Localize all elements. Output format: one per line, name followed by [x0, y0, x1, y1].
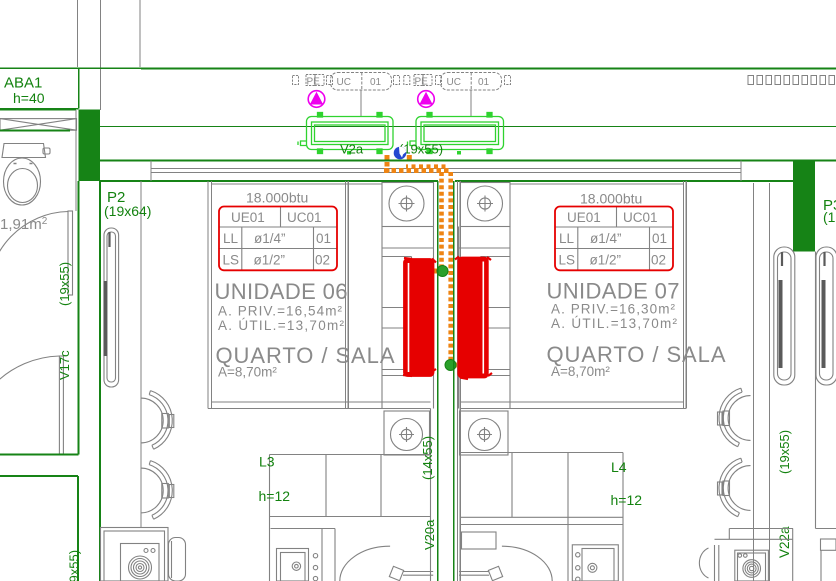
- svg-text:(19x55): (19x55): [777, 430, 792, 474]
- svg-text:A. ÚTIL.=13,70m²: A. ÚTIL.=13,70m²: [551, 316, 678, 331]
- svg-text:UC: UC: [337, 77, 351, 88]
- svg-text:A=8,70m²: A=8,70m²: [551, 364, 610, 379]
- svg-text:LS: LS: [223, 253, 240, 268]
- svg-text:h=12: h=12: [611, 492, 643, 508]
- svg-text:ø1/4”: ø1/4”: [590, 231, 622, 246]
- svg-text:UNIDADE 06: UNIDADE 06: [215, 279, 348, 304]
- svg-text:18.000btu: 18.000btu: [580, 191, 642, 207]
- svg-text:ø1/4”: ø1/4”: [254, 231, 286, 246]
- svg-text:(19x55): (19x55): [67, 550, 82, 581]
- svg-text:ABA1: ABA1: [4, 75, 42, 92]
- svg-text:V22a: V22a: [777, 526, 792, 558]
- svg-text:h=40: h=40: [13, 90, 45, 106]
- svg-text:A=8,70m²: A=8,70m²: [218, 365, 277, 380]
- svg-text:A. ÚTIL.=13,70m²: A. ÚTIL.=13,70m²: [218, 318, 345, 333]
- svg-text:LL: LL: [559, 231, 575, 246]
- svg-text:V17c: V17c: [57, 350, 72, 380]
- svg-text:LS: LS: [559, 253, 576, 268]
- svg-text:UE01: UE01: [567, 210, 601, 225]
- svg-text:(14x55): (14x55): [420, 436, 435, 480]
- svg-text:01: 01: [652, 231, 667, 246]
- svg-text:UE01: UE01: [231, 210, 265, 225]
- svg-text:LL: LL: [223, 231, 239, 246]
- svg-text:UC01: UC01: [287, 210, 322, 225]
- svg-text:h=12: h=12: [259, 488, 291, 504]
- svg-text:V20a: V20a: [422, 519, 437, 550]
- svg-text:01: 01: [370, 77, 382, 88]
- svg-text:ø1/2”: ø1/2”: [254, 253, 286, 268]
- svg-text:01: 01: [316, 231, 331, 246]
- svg-text:(1: (1: [823, 209, 836, 225]
- svg-text:V2a: V2a: [340, 142, 364, 157]
- svg-text:UC01: UC01: [623, 210, 658, 225]
- svg-text:PE: PE: [307, 77, 321, 88]
- svg-text:01: 01: [478, 77, 490, 88]
- svg-text:(19x55): (19x55): [57, 262, 72, 306]
- svg-text:L4: L4: [611, 459, 627, 475]
- svg-text:02: 02: [315, 253, 330, 268]
- svg-text:1,91m2: 1,91m2: [0, 216, 48, 233]
- svg-text:UC: UC: [447, 77, 461, 88]
- svg-text:(19x64): (19x64): [104, 203, 151, 219]
- svg-text:L3: L3: [259, 454, 275, 470]
- svg-text:PE: PE: [415, 77, 429, 88]
- svg-text:ø1/2”: ø1/2”: [590, 253, 622, 268]
- svg-text:18.000btu: 18.000btu: [246, 190, 308, 206]
- svg-text:UNIDADE 07: UNIDADE 07: [547, 279, 680, 304]
- svg-text:02: 02: [651, 253, 666, 268]
